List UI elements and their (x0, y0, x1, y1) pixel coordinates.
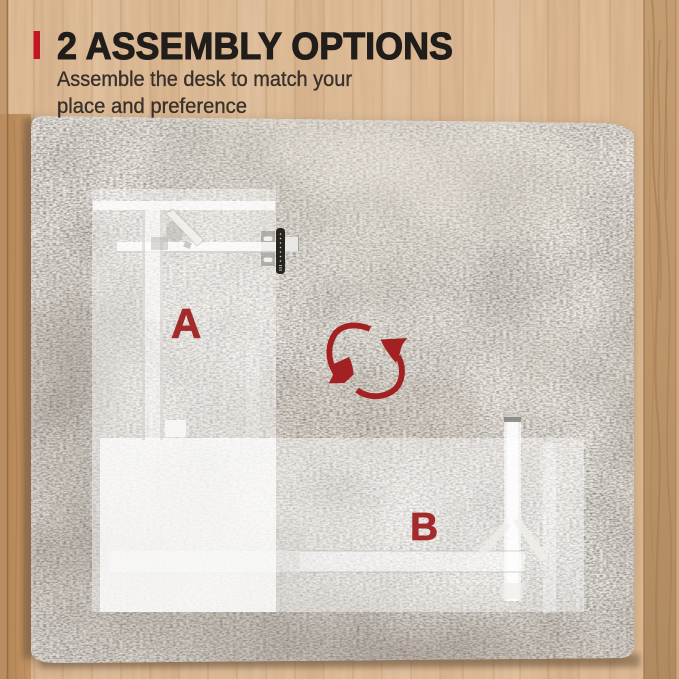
svg-text:B: B (410, 506, 438, 549)
svg-text:Assemble the desk to match you: Assemble the desk to match your (57, 68, 352, 91)
svg-text:A: A (171, 300, 201, 347)
svg-text:2 ASSEMBLY OPTIONS: 2 ASSEMBLY OPTIONS (57, 26, 453, 68)
svg-text:place and preference: place and preference (57, 95, 247, 118)
